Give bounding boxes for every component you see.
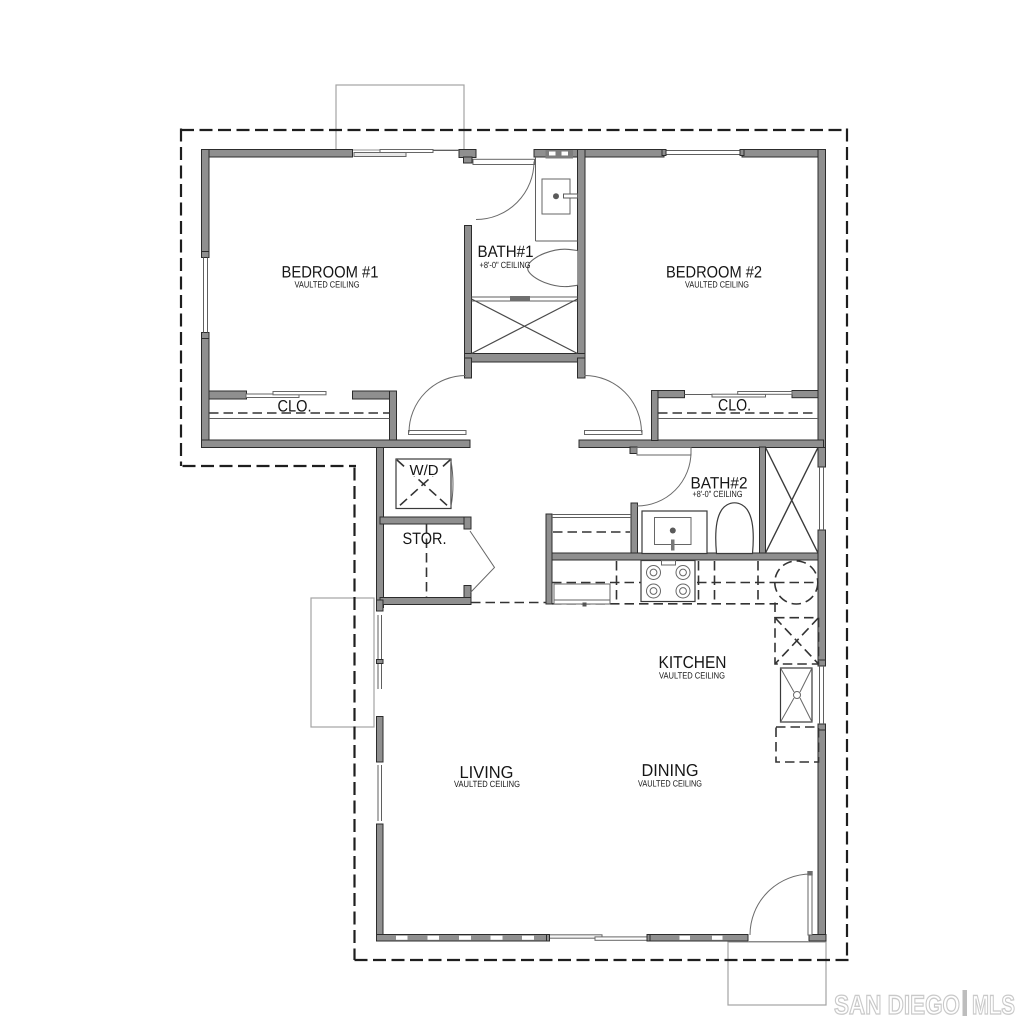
svg-text:BATH#1: BATH#1	[478, 243, 534, 261]
svg-text:VAULTED CEILING: VAULTED CEILING	[685, 279, 749, 289]
svg-text:VAULTED CEILING: VAULTED CEILING	[638, 778, 702, 788]
svg-text:VAULTED CEILING: VAULTED CEILING	[454, 779, 520, 789]
svg-text:+8'-0" CEILING: +8'-0" CEILING	[693, 489, 743, 499]
svg-text:DINING: DINING	[642, 760, 699, 780]
svg-text:CLO.: CLO.	[278, 397, 312, 415]
svg-text:CLO.: CLO.	[718, 396, 751, 414]
svg-text:MLS: MLS	[972, 990, 1015, 1020]
svg-text:STOR.: STOR.	[403, 530, 447, 548]
svg-text:VAULTED CEILING: VAULTED CEILING	[659, 670, 725, 680]
svg-text:KITCHEN: KITCHEN	[659, 652, 727, 672]
svg-text:+8'-0" CEILING: +8'-0" CEILING	[480, 260, 531, 270]
svg-text:W/D: W/D	[410, 463, 439, 479]
svg-text:VAULTED CEILING: VAULTED CEILING	[295, 279, 360, 289]
svg-text:SAN DIEGO: SAN DIEGO	[834, 990, 960, 1020]
